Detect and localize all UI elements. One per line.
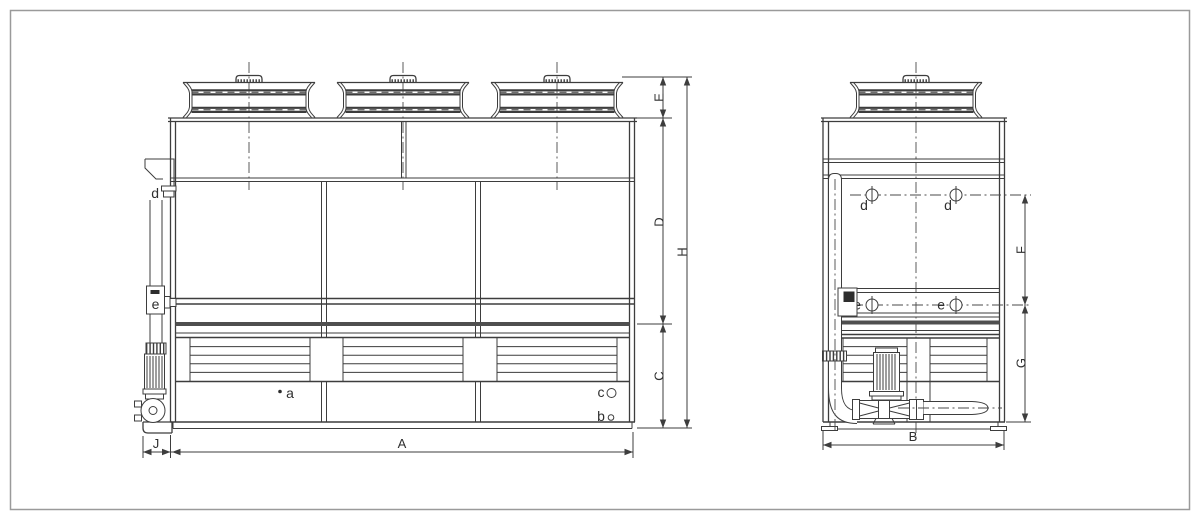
port-b-label: b <box>597 408 605 424</box>
dim-label-G: G <box>1014 358 1029 368</box>
port-a-mark <box>278 390 282 394</box>
dim-label-H: H <box>675 247 690 256</box>
port-d-label: d <box>944 197 952 213</box>
port-e-stub <box>165 297 171 309</box>
dim-label-D: D <box>652 217 667 226</box>
port-a-label: a <box>286 385 294 401</box>
port-d-label: d <box>151 185 159 201</box>
drawing-canvas: a c b d e <box>0 0 1200 520</box>
pump-flange <box>910 400 917 420</box>
port-d-stub <box>164 191 175 197</box>
dim-label-B: B <box>909 429 918 444</box>
port-e-label: e <box>937 297 945 313</box>
dim-label-J: J <box>153 436 160 451</box>
port-d-stub <box>162 186 177 191</box>
dim-label-F: F <box>1014 246 1029 254</box>
control-box-window <box>844 292 855 303</box>
port-e-stub <box>170 299 176 307</box>
cooling-tower-technical-drawing: a c b d e <box>0 0 1200 520</box>
dim-label-C: C <box>652 371 667 380</box>
pipe-flange <box>917 400 924 420</box>
base-foot <box>991 427 1007 431</box>
spray-inlet-slot <box>151 290 160 294</box>
dim-label-E: E <box>652 93 667 102</box>
pump-flange <box>853 400 860 420</box>
port-e-label: e <box>152 296 160 312</box>
pump-volute <box>141 399 165 423</box>
port-d-label: d <box>860 197 868 213</box>
drawing-border-frame <box>11 11 1190 510</box>
dim-label-A: A <box>398 436 407 451</box>
port-c-label: c <box>598 384 605 400</box>
